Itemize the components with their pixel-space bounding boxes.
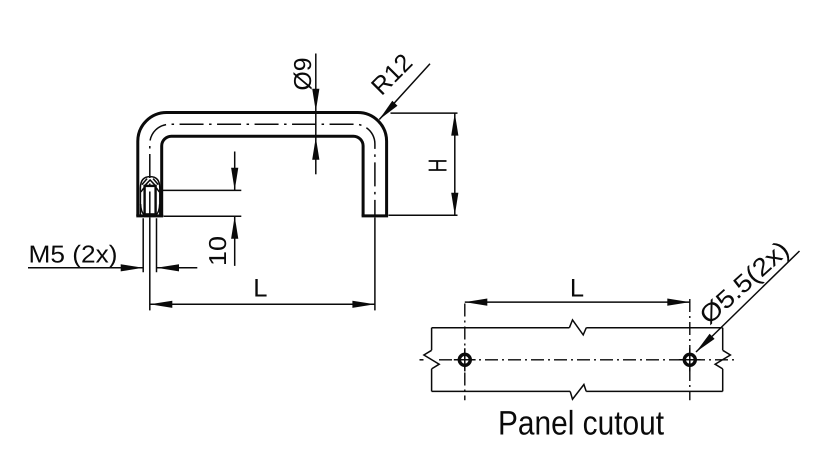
svg-text:L: L	[253, 275, 267, 303]
svg-text:10: 10	[205, 236, 232, 266]
svg-text:Panel cutout: Panel cutout	[498, 405, 664, 443]
svg-text:M5 (2x): M5 (2x)	[29, 242, 118, 269]
svg-text:L: L	[570, 275, 584, 303]
svg-text:H: H	[423, 159, 453, 173]
svg-text:Ø9: Ø9	[290, 58, 317, 91]
